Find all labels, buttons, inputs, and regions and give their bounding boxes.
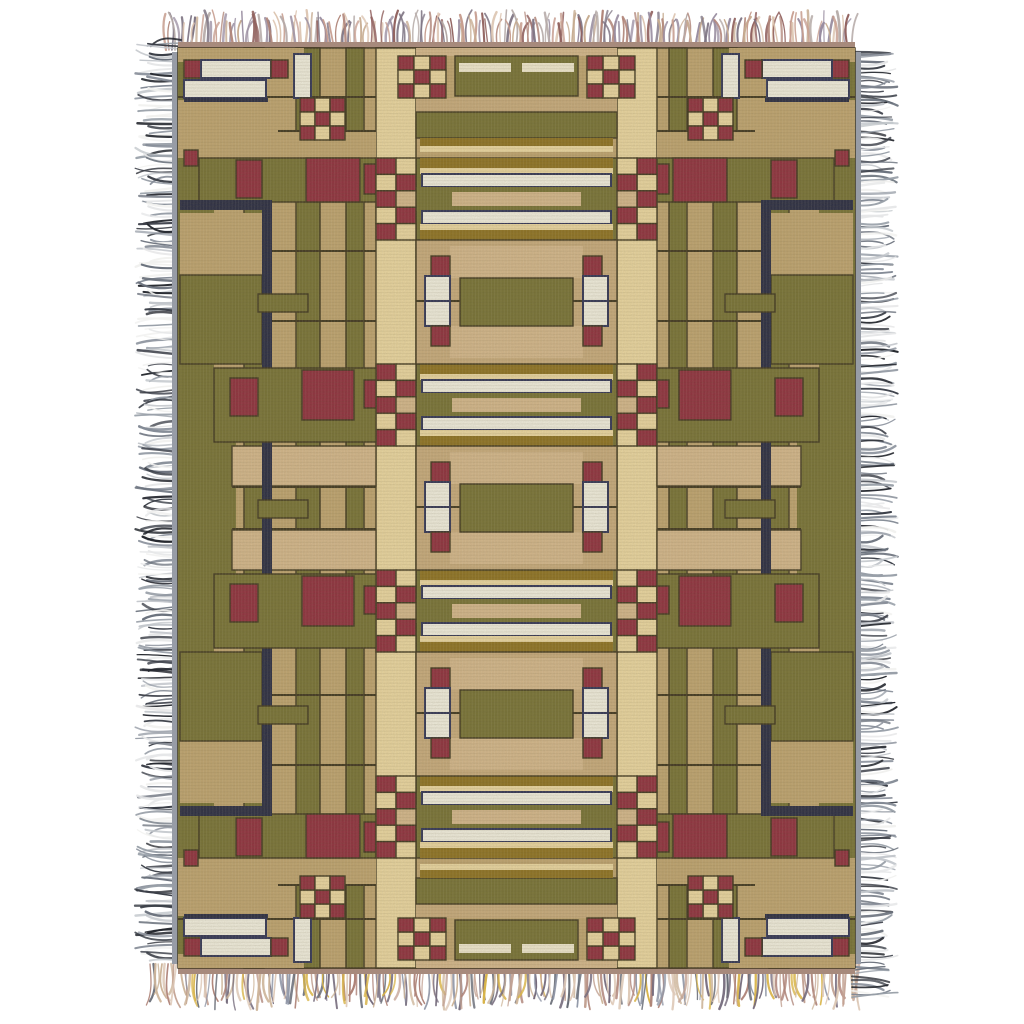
page-background bbox=[0, 0, 1024, 1024]
tapestry-blanket-image bbox=[0, 0, 1024, 1024]
